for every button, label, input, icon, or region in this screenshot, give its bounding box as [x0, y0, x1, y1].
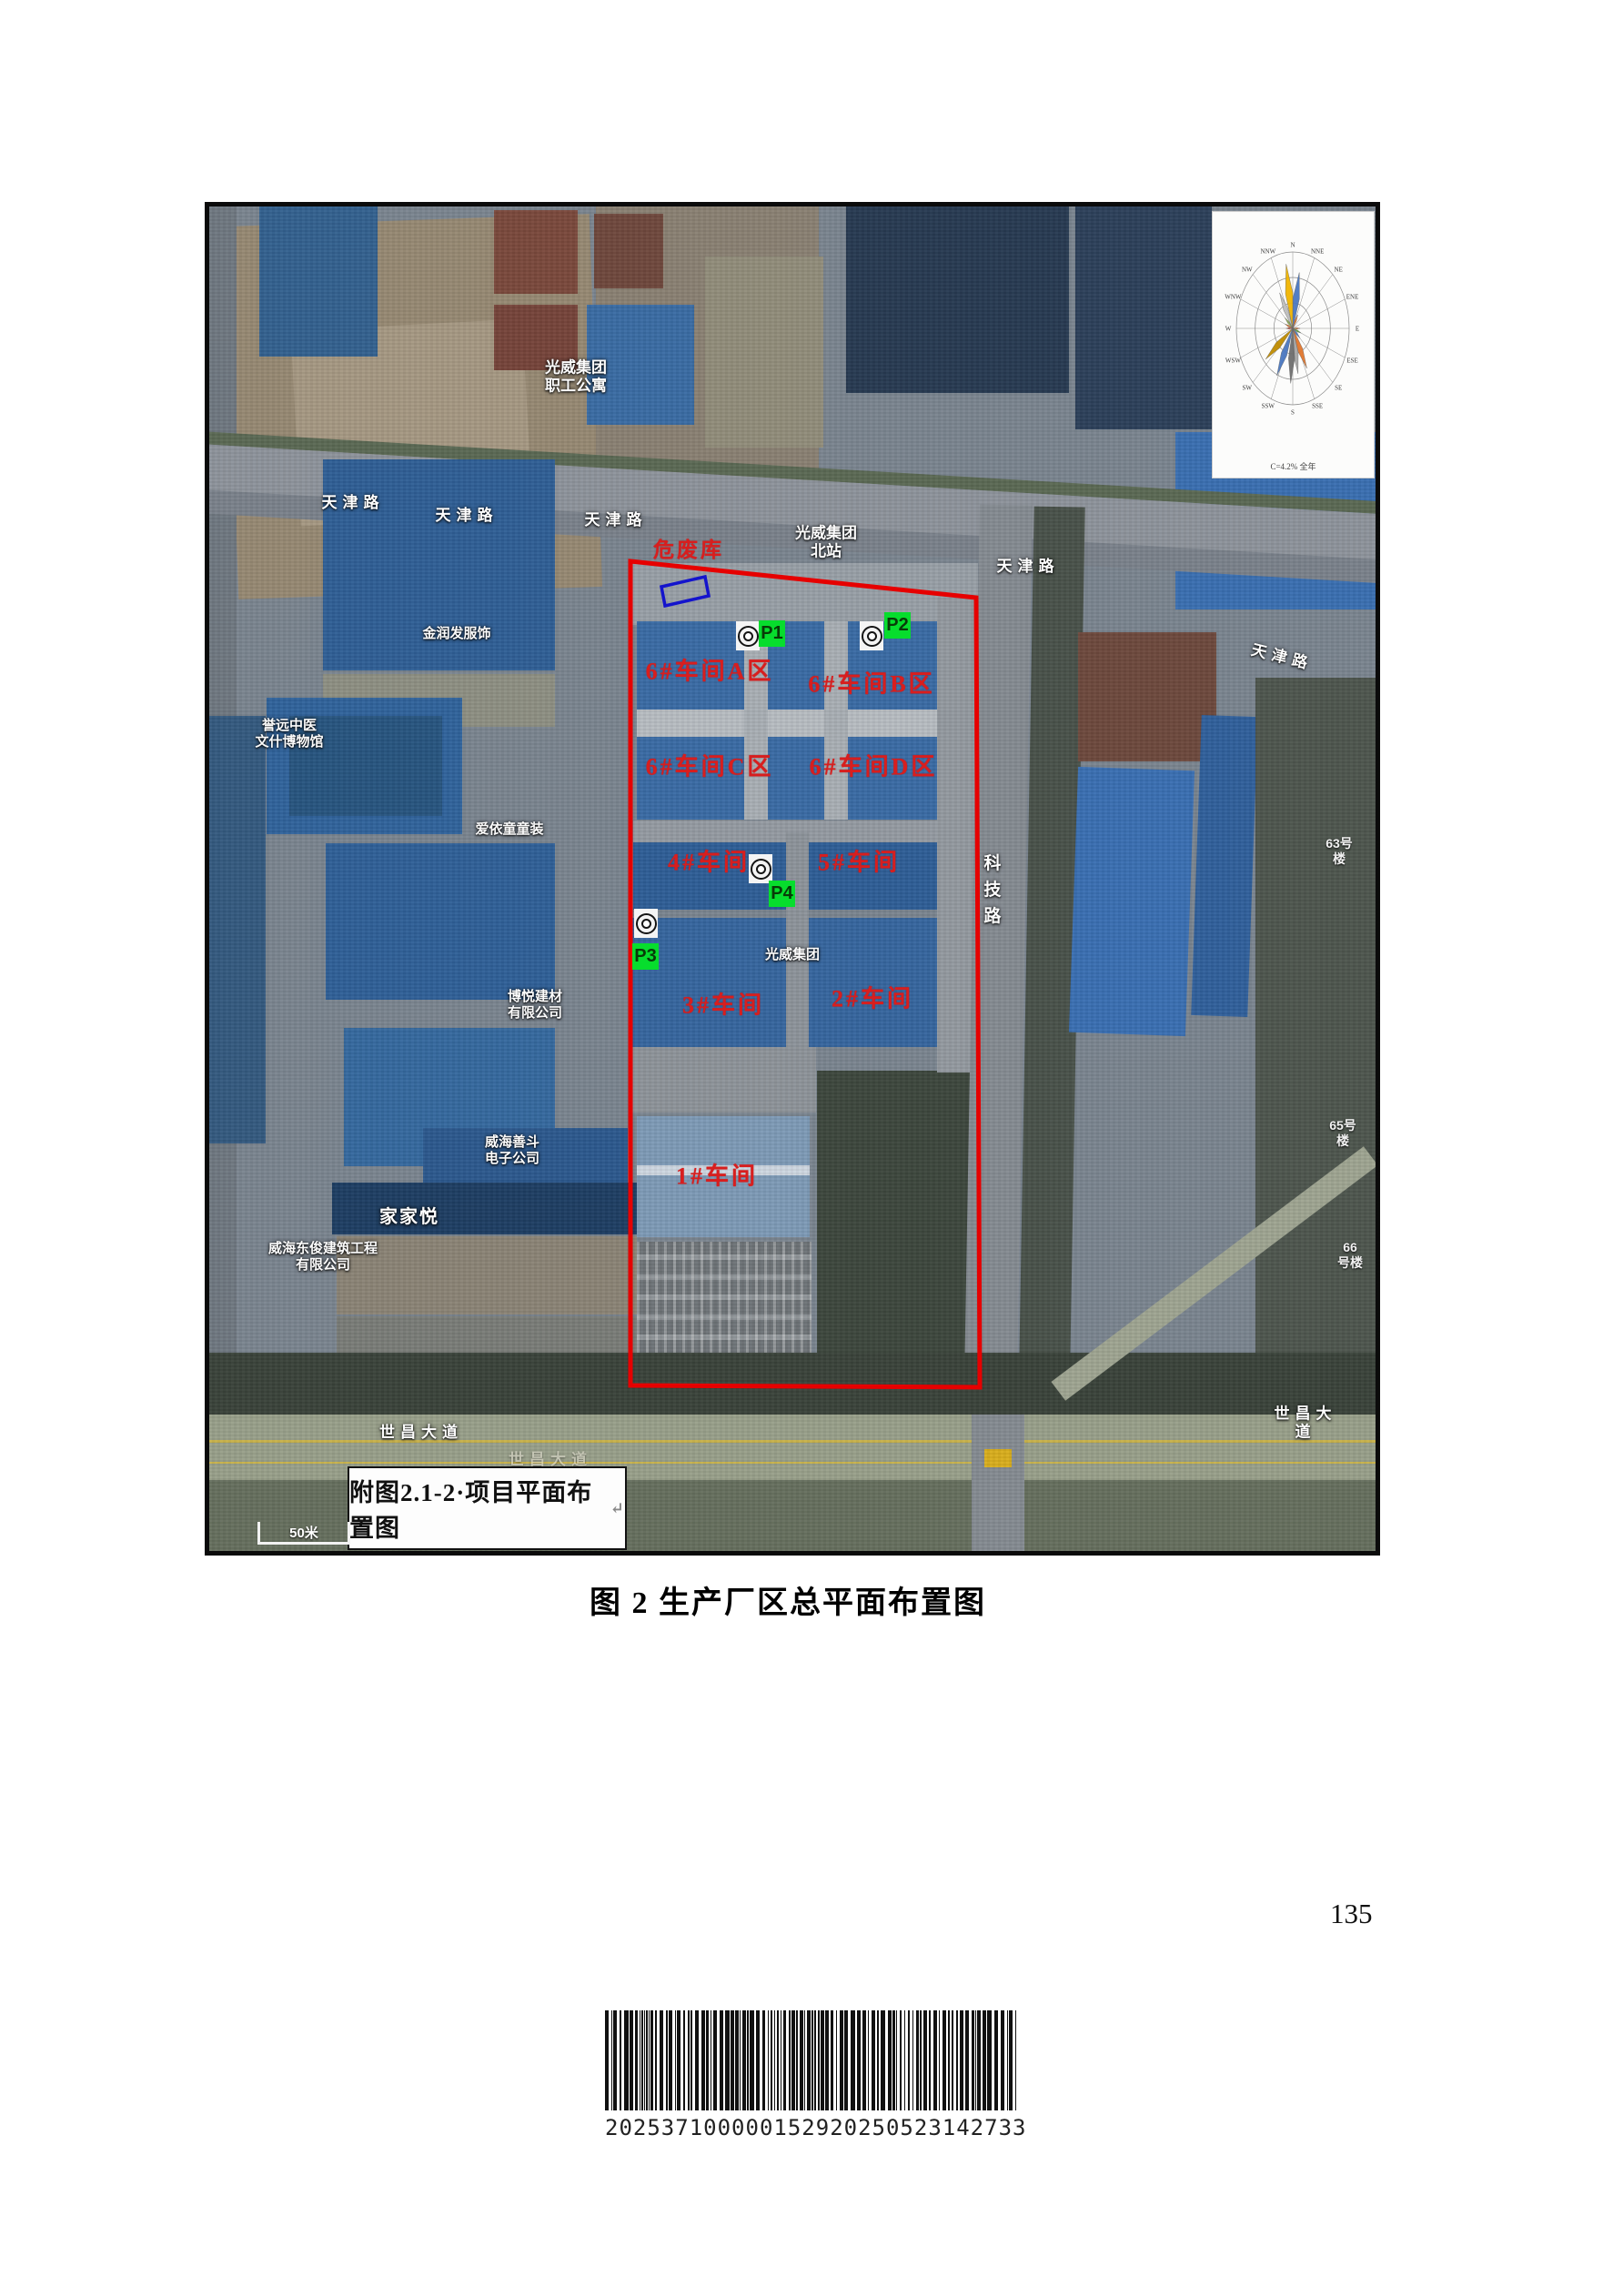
svg-text:WSW: WSW [1225, 357, 1242, 365]
svg-text:S: S [1291, 409, 1295, 417]
map-label-bldg-19: 63号楼 [1321, 836, 1357, 867]
site-map: 天津路天津路天津路天津路天津路世昌大道世昌大道世昌大道科技路光威集团 职工公寓光… [205, 202, 1380, 1556]
svg-text:ESE: ESE [1346, 357, 1357, 365]
svg-text:SSW: SSW [1262, 402, 1275, 409]
monitoring-point-tag: P4 [769, 881, 795, 907]
barcode-bars [605, 2010, 1016, 2110]
map-label-place-14: 博悦建材 有限公司 [508, 989, 562, 1022]
svg-text:WNW: WNW [1225, 293, 1242, 300]
map-label-place-11: 金润发服饰 [422, 626, 490, 642]
svg-text:W: W [1225, 326, 1232, 333]
map-label-workshop-30: 2#车间 [832, 984, 913, 1012]
map-label-bldg-21: 66号楼 [1337, 1240, 1363, 1271]
map-label-road-5: 世昌大道 [379, 1424, 463, 1442]
svg-text:NNE: NNE [1311, 248, 1324, 256]
svg-text:NE: NE [1335, 266, 1343, 273]
map-labels-layer: 天津路天津路天津路天津路天津路世昌大道世昌大道世昌大道科技路光威集团 职工公寓光… [209, 206, 1376, 1551]
report-page: 天津路天津路天津路天津路天津路世昌大道世昌大道世昌大道科技路光威集团 职工公寓光… [0, 0, 1623, 2296]
target-icon [634, 909, 658, 938]
target-icon [860, 621, 883, 650]
map-label-road-3: 天津路 [997, 558, 1060, 576]
target-icon [749, 854, 772, 883]
map-label-workshop-27: 4#车间 [668, 848, 750, 876]
figure-inset-label-text: 附图2.1-2·项目平面布置图 [349, 1473, 609, 1544]
map-label-road-2: 天津路 [585, 511, 648, 529]
map-label-place-9: 光威集团 职工公寓 [545, 359, 607, 397]
map-label-road-4: 天津路 [1249, 641, 1315, 674]
svg-text:N: N [1290, 242, 1295, 249]
map-label-workshop-23: 6#车间A区 [646, 657, 774, 685]
map-scale-bar: 50米 [257, 1522, 350, 1545]
map-label-workshop-28: 5#车间 [818, 848, 900, 876]
svg-text:NNW: NNW [1260, 248, 1275, 256]
svg-text:SE: SE [1335, 385, 1342, 392]
svg-text:SSE: SSE [1312, 402, 1323, 409]
map-label-road-0: 天津路 [322, 494, 385, 512]
barcode-number: 202537100000152920250523142733 [605, 2115, 1016, 2140]
monitoring-point-tag: P1 [759, 620, 785, 647]
map-label-place-18: 光威集团 [765, 947, 820, 963]
map-label-place-bold-16: 家家悦 [379, 1206, 439, 1228]
wind-rose-chart: NNNENEENEEESESESSESSSWSWWSWWWNWNWNNW [1213, 212, 1374, 458]
map-label-workshop-22: 危废库 [653, 538, 724, 563]
map-label-workshop-24: 6#车间B区 [808, 670, 934, 698]
map-label-place-17: 威海东俊建筑工程 有限公司 [268, 1241, 378, 1274]
svg-text:ENE: ENE [1346, 293, 1359, 300]
paragraph-mark: ↵ [610, 1499, 625, 1518]
map-label-place-13: 爱依童童装 [475, 821, 543, 838]
map-scale-label: 50米 [289, 1523, 318, 1542]
page-number: 135 [1330, 1898, 1373, 1930]
map-label-road-v-8: 科技路 [980, 854, 1001, 933]
map-label-workshop-31: 1#车间 [676, 1162, 758, 1190]
wind-rose-caption: C=4.2% 全年 [1213, 460, 1374, 472]
svg-text:NW: NW [1242, 266, 1253, 273]
monitoring-point-tag: P2 [884, 612, 911, 639]
svg-text:SW: SW [1243, 385, 1253, 392]
target-icon [736, 621, 760, 650]
map-label-road-1: 天津路 [436, 507, 499, 525]
barcode: 202537100000152920250523142733 [605, 2010, 1016, 2140]
figure-inset-label: 附图2.1-2·项目平面布置图 ↵ [348, 1466, 627, 1550]
monitoring-point-tag: P3 [632, 943, 659, 970]
map-label-workshop-29: 3#车间 [682, 991, 764, 1019]
map-label-place-12: 誉远中医 文什博物馆 [255, 718, 323, 750]
map-label-place-10: 光威集团 北站 [795, 525, 857, 562]
map-label-workshop-25: 6#车间C区 [646, 752, 774, 780]
map-label-place-15: 威海善斗 电子公司 [485, 1134, 539, 1167]
figure-caption: 图 2 生产厂区总平面布置图 [205, 1577, 1371, 1622]
svg-text:E: E [1356, 326, 1359, 333]
map-label-road-7: 世昌大道 [1271, 1405, 1341, 1443]
map-label-bldg-20: 65号楼 [1326, 1118, 1359, 1149]
map-label-workshop-26: 6#车间D区 [810, 752, 938, 780]
wind-rose: NNNENEENEEESESESSESSSWSWWSWWWNWNWNNW C=4… [1213, 212, 1374, 478]
